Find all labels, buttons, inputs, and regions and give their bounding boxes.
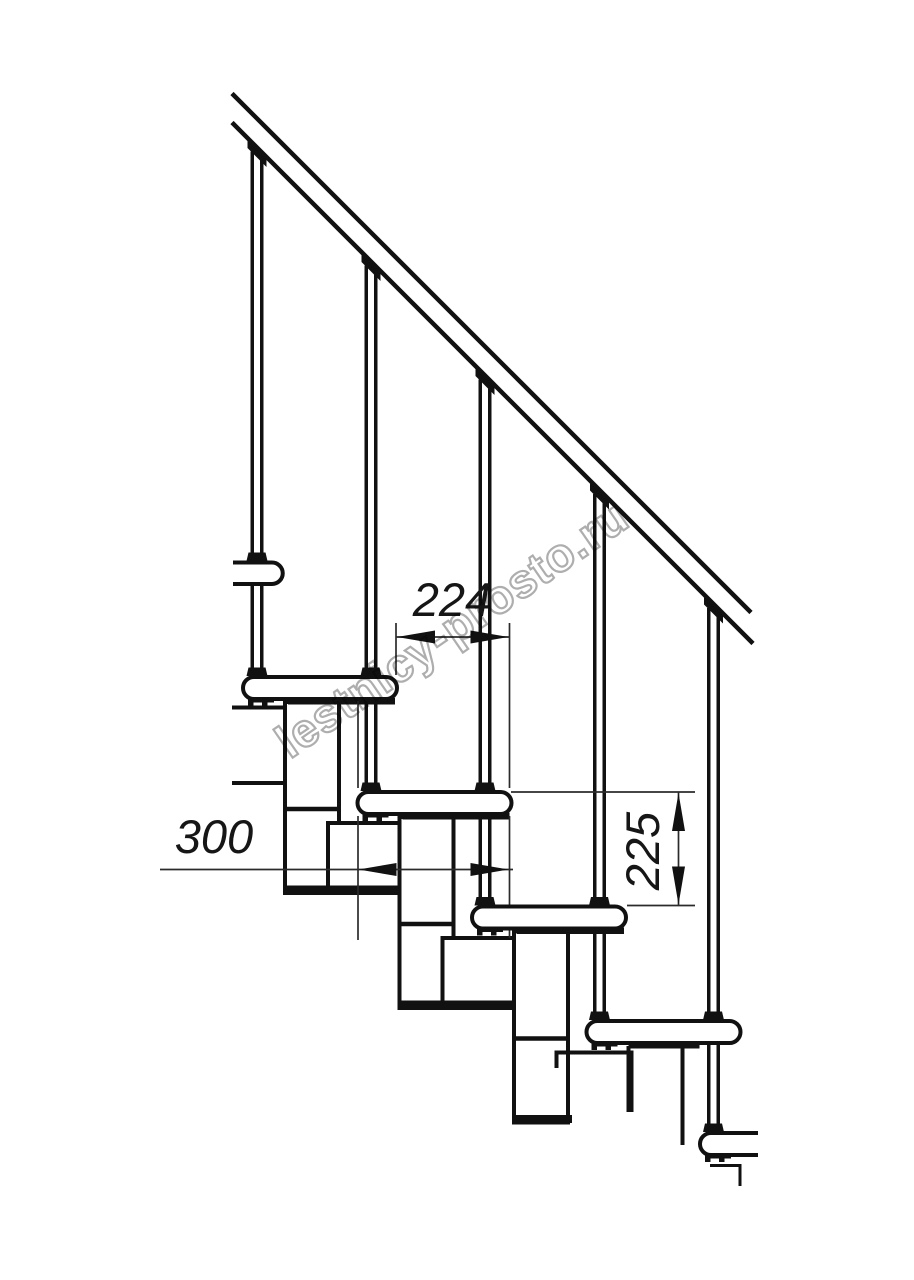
dim-label-rise: 225 xyxy=(616,811,669,891)
baluster-foot xyxy=(589,1012,610,1021)
drawing-page: 224300225lestnicy-prosto.ru xyxy=(0,0,914,1280)
tread xyxy=(472,907,626,929)
module-step-partial-edge xyxy=(710,1166,740,1187)
module-box xyxy=(328,823,403,893)
module-stem xyxy=(514,932,568,1123)
tread-bracket xyxy=(705,1154,731,1162)
tread xyxy=(587,1021,741,1043)
module-box xyxy=(443,938,518,1008)
module-base-plate xyxy=(398,1001,520,1009)
dimension-arrow-down xyxy=(672,867,685,905)
baluster-foot xyxy=(361,783,382,792)
baluster-foot xyxy=(475,897,496,906)
handrail-lower-line xyxy=(232,123,753,644)
tread-fragment-lower xyxy=(700,1133,758,1155)
tread-fragment-upper xyxy=(233,563,283,585)
tread xyxy=(358,792,512,814)
dim-label-tread-depth: 300 xyxy=(175,810,253,863)
baluster-clamp xyxy=(589,897,610,906)
module-base-plate xyxy=(512,1115,572,1123)
baluster-clamp xyxy=(475,783,496,792)
dimension-arrow-up xyxy=(672,793,685,831)
baluster-clamp xyxy=(703,1012,724,1021)
module-base-plate xyxy=(283,886,405,894)
baluster-foot xyxy=(247,668,268,677)
watermark-text: lestnicy-prosto.ru xyxy=(266,489,638,768)
staircase-technical-drawing: 224300225lestnicy-prosto.ru xyxy=(0,0,914,1280)
baluster-clamp xyxy=(247,553,268,562)
baluster-foot xyxy=(703,1124,724,1133)
